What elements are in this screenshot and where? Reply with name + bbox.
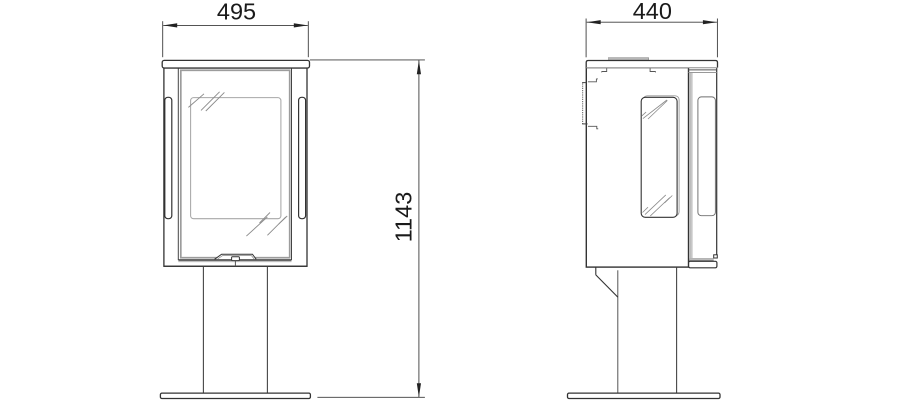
svg-text:495: 495 xyxy=(217,0,256,25)
svg-text:440: 440 xyxy=(633,0,672,24)
svg-text:1143: 1143 xyxy=(391,192,417,243)
